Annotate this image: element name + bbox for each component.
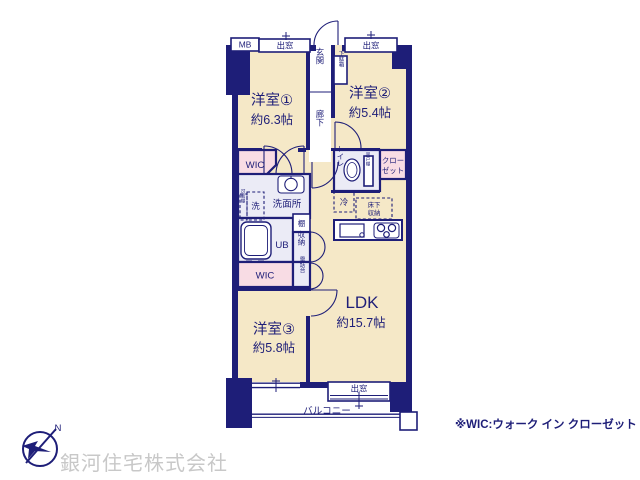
label-bay-window-2: 出窓 <box>363 41 380 51</box>
label-balcony: バルコニー <box>303 406 351 417</box>
label-corridor: 廊下 <box>315 109 325 127</box>
label-shelf: 棚 <box>298 219 305 228</box>
label-washroom: 洗面所 <box>273 198 302 210</box>
label-washer: 洗 <box>251 201 260 211</box>
company-name: 銀河住宅株式会社 <box>60 452 228 475</box>
label-closet-line2: ゼット <box>382 166 404 175</box>
label-ldk-size: 約15.7帖 <box>336 315 385 330</box>
label-ldk-name: LDK <box>345 293 379 312</box>
wic-note: ※WIC:ウォーク イン クローゼット <box>455 417 637 431</box>
label-yoshitsu1-size: 約6.3帖 <box>251 112 293 127</box>
label-shoe-box: 下駄箱 <box>338 51 345 69</box>
compass-north-label: N <box>55 423 62 434</box>
label-unit-bath: UB <box>275 240 288 251</box>
label-yoshitsu3-size: 約5.8帖 <box>253 340 295 355</box>
label-yoshitsu1-name: 洋室① <box>251 92 293 109</box>
label-hanging-cupboard: 吊戸棚 <box>365 152 371 167</box>
company-logo: N <box>22 423 62 466</box>
label-mb: MB <box>239 40 252 50</box>
label-yoshitsu2-name: 洋室② <box>349 85 391 102</box>
label-bay-window-3: 出窓 <box>351 384 368 394</box>
label-yoshitsu3-name: 洋室③ <box>253 321 295 338</box>
floor-plan-page: 洋室① 約6.3帖 洋室② 約5.4帖 洋室③ 約5.8帖 LDK 約15.7帖… <box>0 0 640 480</box>
bathtub-icon <box>241 222 271 261</box>
label-wic-lower: WIC <box>256 271 275 282</box>
entrance-door-arc <box>314 21 338 45</box>
label-wic-upper: WIC <box>246 160 265 171</box>
floor-plan: 洋室① 約6.3帖 洋室② 約5.4帖 洋室③ 約5.8帖 LDK 約15.7帖… <box>0 0 640 480</box>
label-movable-shelf: 可動棚 <box>240 189 246 204</box>
label-yoshitsu2-size: 約5.4帖 <box>349 105 391 120</box>
kitchen-sink-icon <box>340 224 364 237</box>
washbasin-icon <box>278 176 304 193</box>
label-storage: 収納 <box>297 231 306 247</box>
label-phone-stand: 電話台 <box>299 257 306 275</box>
label-entrance: 玄関 <box>315 47 325 65</box>
label-bay-window-1: 出窓 <box>277 41 294 51</box>
label-underfloor-line2: 収納 <box>368 208 381 217</box>
label-underfloor-line1: 床下 <box>368 200 381 209</box>
swallow-icon <box>22 441 51 459</box>
balcony-partition <box>400 412 417 430</box>
label-toilet: トイレ <box>336 145 345 167</box>
label-fridge: 冷 <box>340 197 348 207</box>
label-closet-line1: クロー <box>382 156 404 165</box>
kitchen-counter <box>334 220 402 240</box>
